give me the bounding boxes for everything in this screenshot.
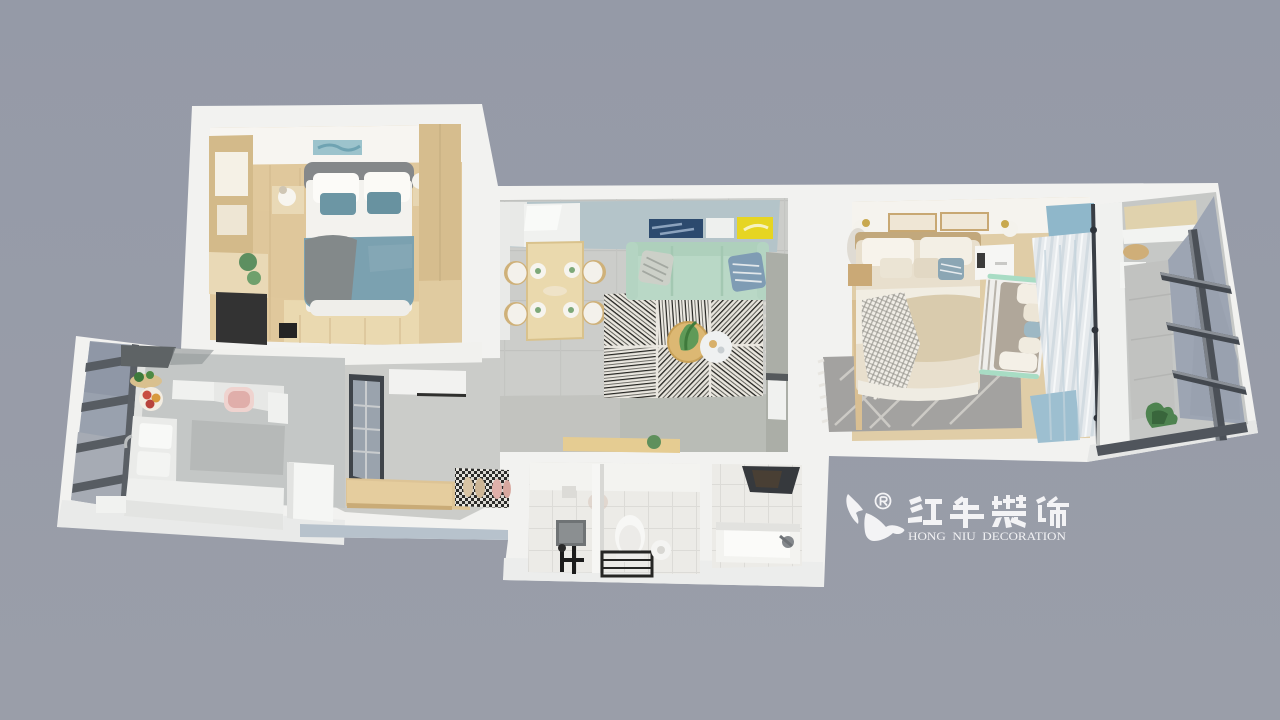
svg-text:HONG NIU DECORATION: HONG NIU DECORATION xyxy=(908,531,1067,543)
